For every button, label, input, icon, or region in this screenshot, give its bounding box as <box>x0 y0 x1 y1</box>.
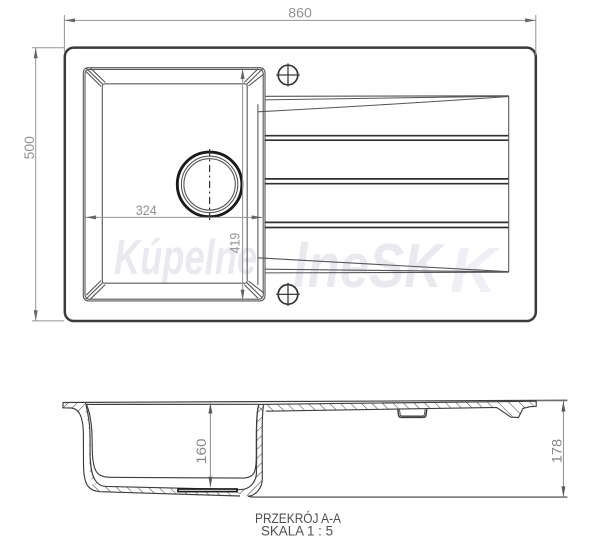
svg-text:324: 324 <box>136 202 157 218</box>
svg-text:860: 860 <box>288 4 312 20</box>
svg-text:500: 500 <box>21 136 37 160</box>
svg-text:160: 160 <box>193 438 209 464</box>
svg-text:SKALA 1 : 5: SKALA 1 : 5 <box>261 524 333 539</box>
svg-text:178: 178 <box>548 439 564 464</box>
svg-text:419: 419 <box>227 233 243 254</box>
